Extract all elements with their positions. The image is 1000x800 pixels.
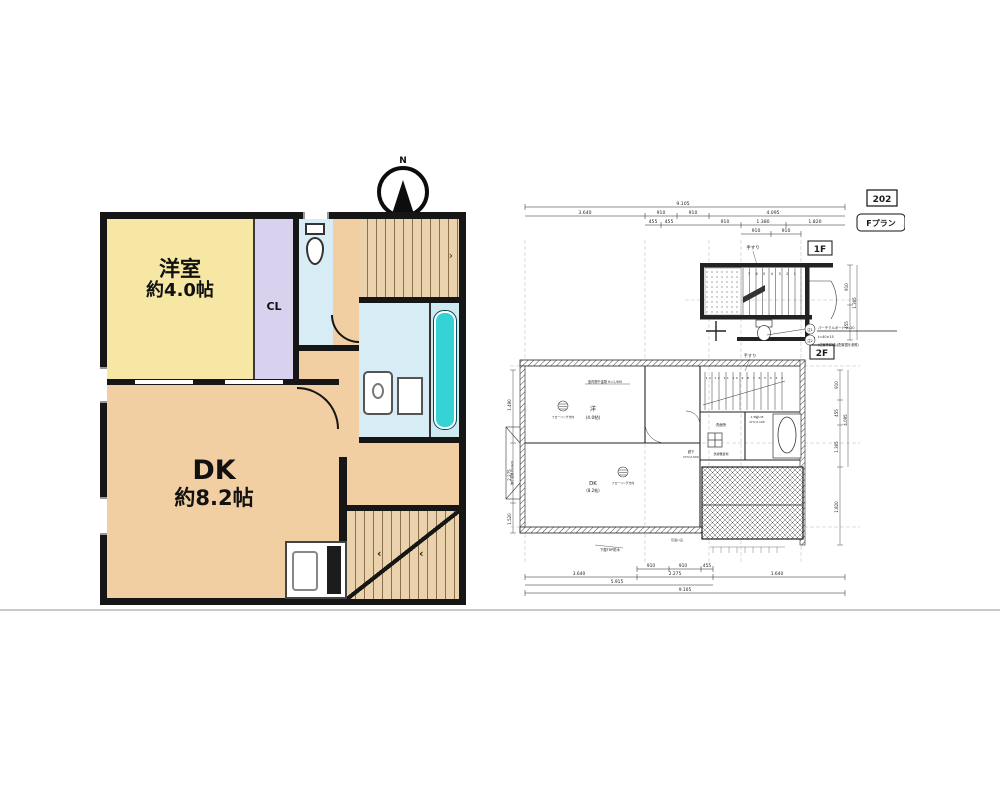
flooring-direction-icon-2 [618, 467, 628, 477]
floor-2f-label: 2F [816, 349, 828, 359]
bathtub-icon [434, 311, 456, 429]
svg-text:910: 910 [782, 228, 791, 234]
svg-text:2.275: 2.275 [507, 469, 512, 481]
dk-2f: DK [589, 481, 597, 487]
svg-text:910: 910 [834, 381, 839, 389]
cad-drawing: 202 Fプラン 1F 2F 9.105 3.640 910 910 4.095 [505, 185, 905, 605]
sheet-number: 202 [873, 195, 892, 205]
note-ref-2: 注2 [807, 338, 813, 343]
svg-text:9.105: 9.105 [676, 201, 689, 207]
washbasin-2f-icon [708, 433, 722, 447]
plan-name: Fプラン [866, 218, 895, 228]
note-annotation: 注1 注2 パーチクルボード t=20 t=40×15 (位置等詳細は配置図を参… [767, 324, 897, 347]
floor-1f-box: 1F [808, 241, 832, 255]
svg-text:1.490: 1.490 [507, 399, 512, 411]
ground-comb-marks [710, 547, 785, 553]
dimension-values-right-2f: 910 455 1.365 4.095 1.820 [834, 381, 848, 513]
dimension-values-bottom: 910 910 455 3.640 2.275 1.640 5.915 9.10… [573, 563, 784, 593]
handrail-label-1f: 手すり [746, 244, 759, 251]
svg-text:910: 910 [657, 210, 666, 216]
washroom [359, 303, 429, 437]
plan-1f: 7 6 5 4 3 2 1 手すり [700, 244, 836, 341]
floor-1f-label: 1F [814, 245, 826, 255]
note-line-3: (位置等詳細は配置図を参照) [818, 342, 859, 347]
svg-text:910: 910 [689, 210, 698, 216]
washer-label: 洗濯機置場 [713, 451, 728, 456]
kitchen-counter [285, 541, 347, 599]
indoor-drying-label: 室内物干金物 H=1,900 [588, 379, 622, 384]
window [100, 367, 107, 403]
compass-needle-icon [392, 180, 414, 214]
sliding-door [135, 380, 193, 384]
stairs-lower: ‹ ‹ [347, 511, 459, 599]
door-arc-2f [645, 423, 665, 443]
compass-icon [377, 166, 429, 218]
screenshot: N 洋室 約4.0帖 CL › [0, 0, 1000, 800]
dimension-values-right-1f: 910 455 1.365 [844, 283, 857, 329]
svg-text:4.095: 4.095 [766, 210, 779, 216]
stairs-arrow-icon: ‹ [377, 547, 382, 560]
svg-text:910: 910 [752, 228, 761, 234]
room-west: 洋室 約4.0帖 [107, 219, 253, 379]
ub-ch-label: CH=2,100 [749, 420, 765, 424]
svg-text:5.915: 5.915 [611, 579, 624, 585]
stairs-arrow-icon: ‹ [419, 547, 424, 560]
window [100, 497, 107, 535]
floor-2f-box: 2F [810, 345, 834, 359]
stairs-upper: › [359, 219, 459, 297]
waterproof-label: 下屋FRP防水 [600, 547, 621, 552]
hall-label: 廊下 [688, 449, 695, 454]
washroom-label: 洗面所 [716, 422, 727, 427]
svg-text:1.640: 1.640 [771, 571, 784, 577]
toilet-1f-icon [758, 326, 771, 341]
svg-text:9.105: 9.105 [679, 587, 692, 593]
sheet-number-box: 202 [867, 190, 897, 206]
washbasin-bowl-icon [372, 383, 384, 399]
dk-area: 約8.2帖 [129, 486, 299, 510]
kitchen-sink-icon [292, 551, 318, 591]
svg-text:1.820: 1.820 [834, 501, 839, 513]
wall [359, 437, 459, 443]
dimension-lines-right-2f [837, 370, 848, 545]
svg-text:910: 910 [844, 283, 849, 291]
bathroom [429, 303, 459, 437]
stair-numbers-1f: 7 6 5 4 3 2 1 [748, 272, 798, 276]
stairs-arrow-icon: › [449, 249, 453, 262]
svg-text:455: 455 [834, 409, 839, 417]
toilet-bowl-icon [306, 237, 324, 265]
flooring-label-2: フローリング方向 [612, 481, 635, 485]
note-line-1: パーチクルボード t=20 [818, 325, 855, 330]
divider-line [0, 609, 1000, 611]
toilet-tank-icon [305, 223, 325, 235]
svg-text:3.640: 3.640 [573, 571, 586, 577]
compass-north-label: N [377, 156, 429, 166]
door-arc-2f [686, 411, 700, 425]
note-ref-1: 注1 [807, 327, 813, 332]
svg-text:3.640: 3.640 [578, 210, 591, 216]
svg-text:1.365: 1.365 [852, 297, 857, 309]
window [303, 212, 329, 219]
closet-label: CL [255, 301, 293, 314]
wall [299, 345, 359, 351]
washing-machine-icon [397, 377, 423, 415]
ub-label: 1.5帖U.B [751, 414, 764, 419]
svg-text:1.820: 1.820 [808, 219, 821, 225]
note-line-2: t=40×15 [818, 335, 834, 339]
stair-numbers-2f: 13 12 11 10 9 8 7 6 5 4 3 2 [706, 376, 785, 380]
room-west-area-2f: (4.0帖) [586, 414, 601, 421]
svg-text:455: 455 [665, 219, 674, 225]
svg-text:455: 455 [649, 219, 658, 225]
hall-ch-label: CH=2,500 [683, 455, 699, 459]
dimension-lines-top [525, 204, 845, 237]
dk-name: DK [129, 455, 299, 486]
dimension-values-top: 9.105 3.640 910 910 4.095 455 455 910 1.… [578, 201, 821, 234]
bathtub-2f-icon [778, 417, 796, 453]
flooring-direction-icon [558, 401, 568, 411]
stairs-diagonal-line [347, 511, 459, 599]
plan-name-box: Fプラン [857, 214, 905, 231]
svg-text:910: 910 [679, 563, 688, 569]
compass: N [377, 156, 429, 218]
door-arc [331, 315, 359, 343]
floor-plan-color: 洋室 約4.0帖 CL › [100, 212, 466, 605]
plan-2f: 13 12 11 10 9 8 7 6 5 4 3 2 手すり 洋 (4.0帖)… [506, 352, 805, 553]
svg-text:910: 910 [647, 563, 656, 569]
room-west-name: 洋室 [115, 257, 245, 281]
sliding-door [225, 380, 283, 384]
svg-text:455: 455 [703, 563, 712, 569]
svg-text:910: 910 [721, 219, 730, 225]
svg-text:2.275: 2.275 [669, 571, 682, 577]
room-west-2f: 洋 [590, 405, 596, 413]
room-west-area: 約4.0帖 [115, 281, 245, 302]
window-label: 引違い窓 [671, 537, 683, 542]
porch-area [705, 268, 741, 315]
handrail-label-2f: 手すり [744, 352, 757, 359]
toilet-room [299, 219, 333, 345]
svg-text:1.520: 1.520 [507, 513, 512, 525]
svg-text:1.380: 1.380 [756, 219, 769, 225]
washbasin-icon [363, 371, 393, 415]
closet: CL [253, 219, 293, 379]
svg-text:4.095: 4.095 [843, 414, 848, 426]
stove-icon [327, 546, 341, 594]
dk-area-2f: (8.2帖) [586, 487, 600, 493]
balcony [702, 467, 803, 539]
svg-text:1.365: 1.365 [834, 441, 839, 453]
flooring-label-1: フローリング方向 [552, 415, 575, 419]
